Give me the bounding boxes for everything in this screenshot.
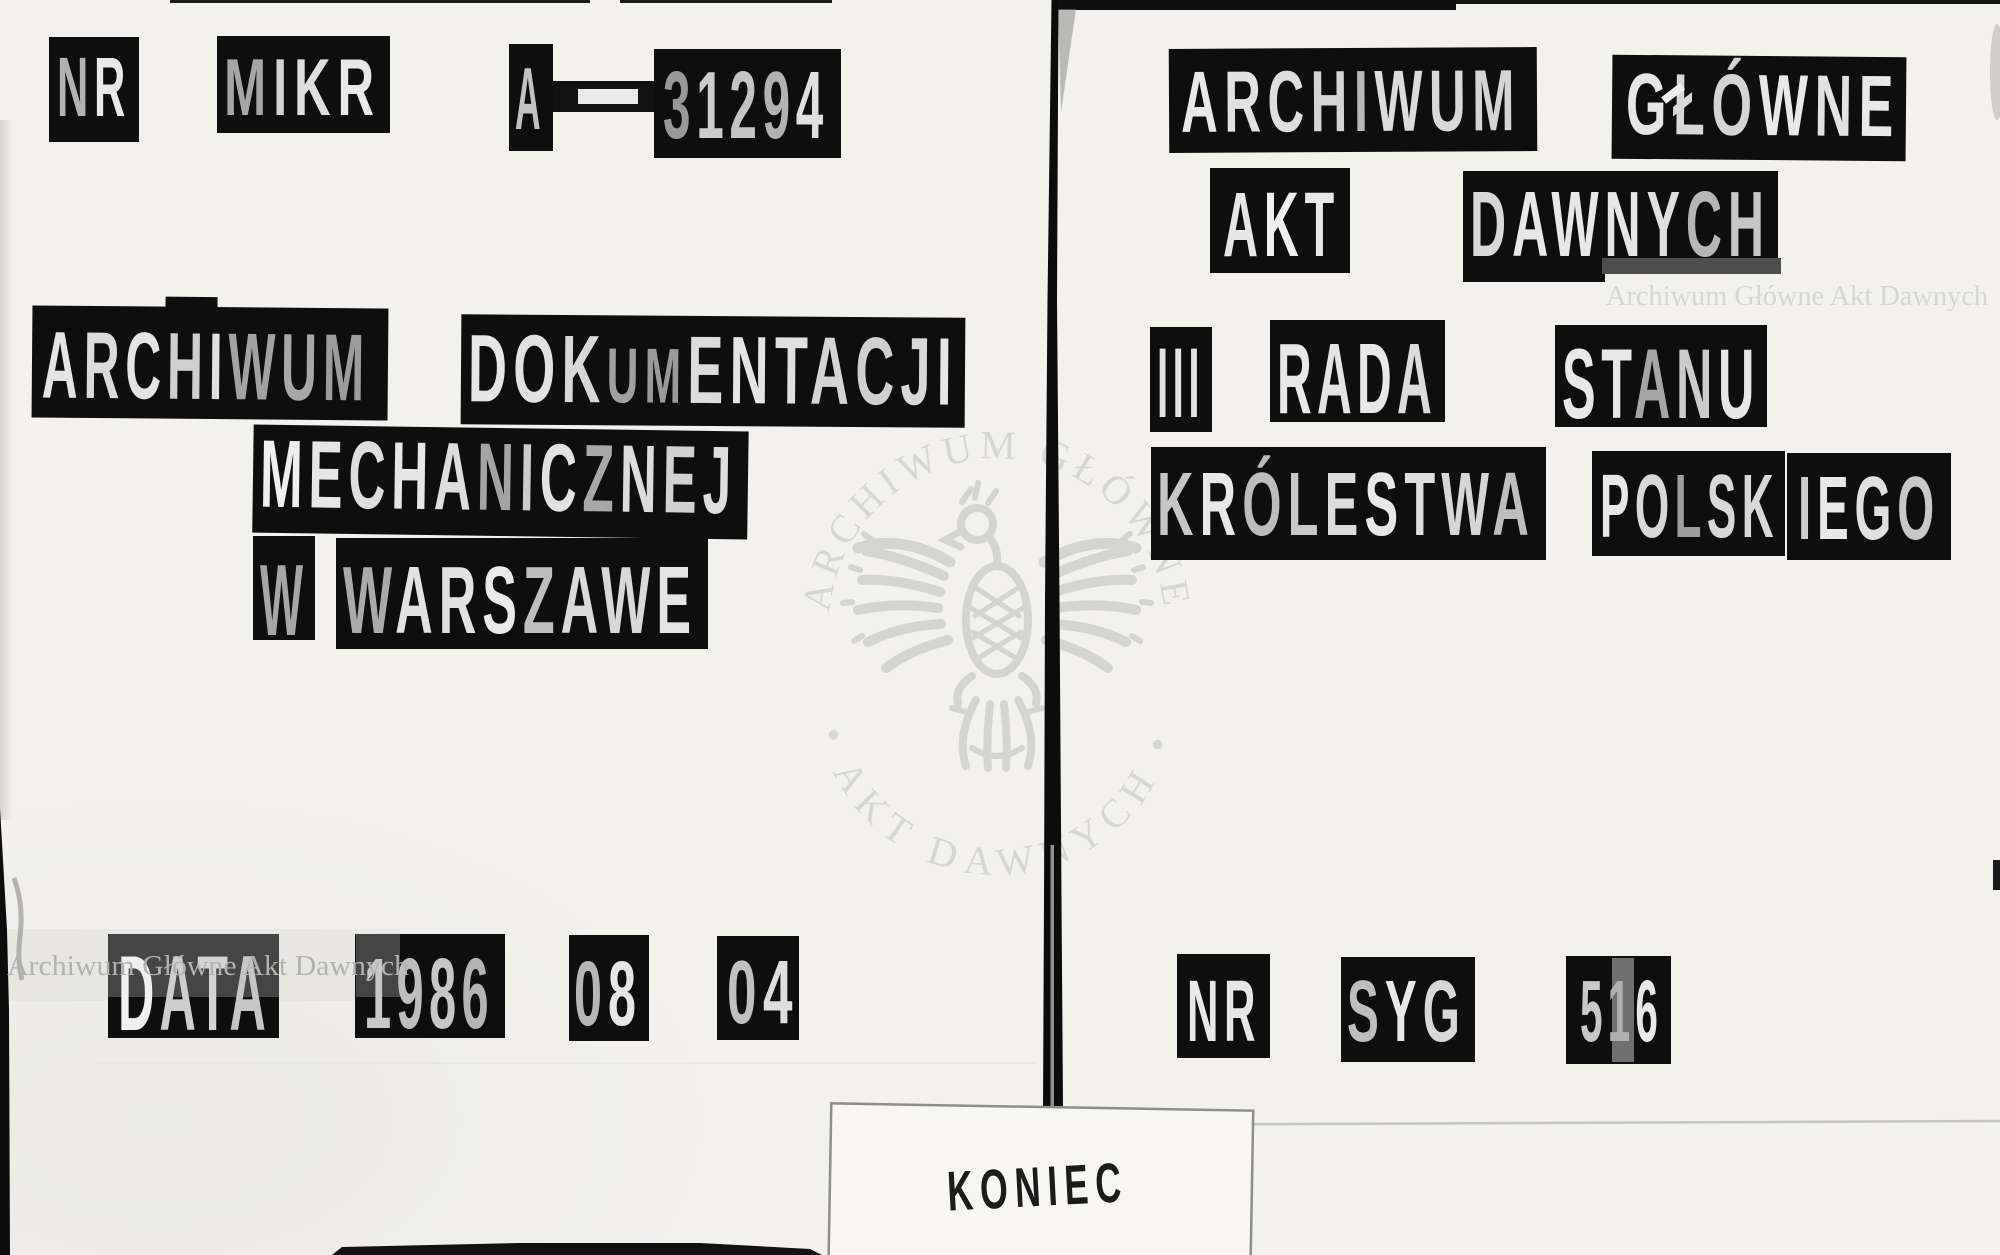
svg-text:RADA: RADA <box>1277 323 1437 435</box>
svg-text:WARSZAWE: WARSZAWE <box>343 547 697 654</box>
svg-text:MECHANICZNEJ: MECHANICZNEJ <box>259 421 737 535</box>
svg-text:NR: NR <box>1187 963 1261 1060</box>
svg-text:SYG: SYG <box>1347 963 1466 1060</box>
svg-text:W: W <box>260 545 308 657</box>
svg-text:516: 516 <box>1580 963 1663 1060</box>
svg-text:Archiwum Główne Akt Dawnych: Archiwum Główne Akt Dawnych <box>7 950 410 982</box>
svg-text:KRÓLESTWA: KRÓLESTWA <box>1157 454 1535 555</box>
svg-text:ARCHIWUM: ARCHIWUM <box>1181 52 1522 151</box>
svg-text:GŁÓWNE: GŁÓWNE <box>1626 56 1901 155</box>
svg-text:NR: NR <box>57 40 131 134</box>
svg-text:DOKUMENTACJI: DOKUMENTACJI <box>468 315 959 425</box>
svg-text:MIKR: MIKR <box>224 43 381 133</box>
svg-text:A: A <box>515 49 545 148</box>
svg-text:IEGO: IEGO <box>1798 459 1940 559</box>
svg-text:31294: 31294 <box>663 52 829 159</box>
svg-text:POLSK: POLSK <box>1600 457 1779 557</box>
svg-text:ARCHIWUM: ARCHIWUM <box>42 313 371 422</box>
svg-text:Archiwum Główne Akt Dawnych: Archiwum Główne Akt Dawnych <box>1606 280 1988 312</box>
svg-text:III: III <box>1157 327 1204 438</box>
svg-text:KONIEC: KONIEC <box>946 1150 1130 1222</box>
svg-text:STANU: STANU <box>1562 328 1760 439</box>
svg-text:08: 08 <box>574 943 642 1045</box>
svg-text:AKT: AKT <box>1223 174 1340 276</box>
svg-text:04: 04 <box>727 943 799 1043</box>
